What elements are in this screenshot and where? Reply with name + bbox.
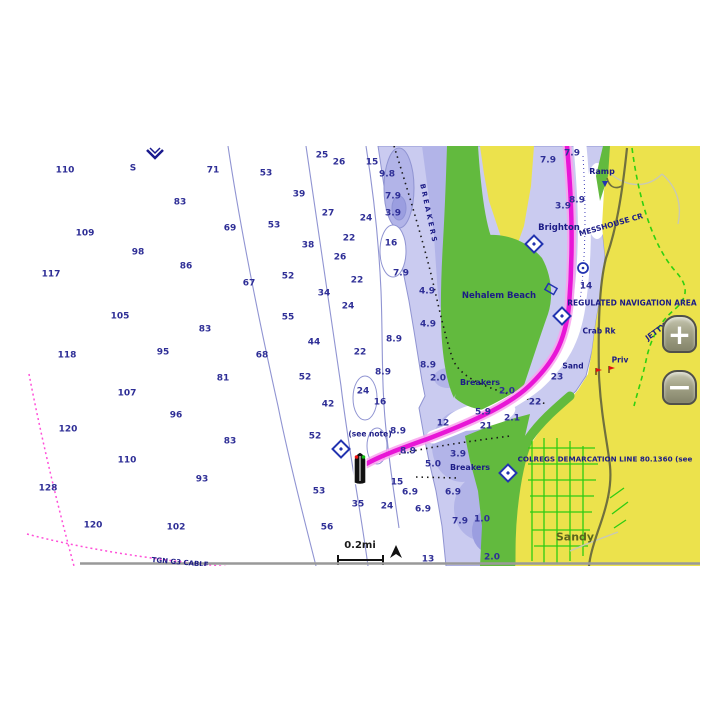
depth-sounding: 35 [352, 501, 365, 510]
depth-sounding: 53 [268, 222, 281, 231]
depth-sounding: 3.9 [450, 451, 466, 460]
depth-sounding: 12 [437, 420, 450, 429]
depth-sounding: 5.9 [475, 409, 491, 418]
depth-sounding: 8.9 [569, 197, 585, 206]
depth-sounding: 95 [157, 349, 170, 358]
depth-sounding: 86 [180, 263, 193, 272]
depth-sounding: 83 [174, 199, 187, 208]
depth-sounding: 22 [354, 349, 367, 358]
place-label: Breakers [460, 379, 500, 387]
depth-sounding: 2.0 [430, 375, 446, 384]
depth-sounding: 7.9 [452, 518, 468, 527]
depth-sounding: 7.9 [393, 270, 409, 279]
depth-sounding: 22 [343, 235, 356, 244]
depth-sounding: 3.9 [385, 210, 401, 219]
depth-sounding: 13 [422, 556, 435, 565]
depth-sounding: 81 [217, 375, 230, 384]
place-label: BREAKERS [418, 183, 438, 245]
nautical-chart-canvas[interactable]: 1107183691099886117105831189581107961208… [10, 146, 700, 566]
depth-sounding: 8.9 [390, 428, 406, 437]
depth-sounding: 4.9 [420, 321, 436, 330]
depth-sounding: 8.9 [386, 336, 402, 345]
depth-sounding: 56 [321, 524, 334, 533]
depth-sounding: 6.9 [415, 506, 431, 515]
depth-sounding: 110 [56, 167, 75, 176]
depth-sounding: 44 [308, 339, 321, 348]
depth-sounding: 55 [282, 314, 295, 323]
depth-sounding: 24 [381, 503, 394, 512]
depth-sounding: 14 [580, 283, 593, 292]
depth-sounding: 6.9 [445, 489, 461, 498]
depth-sounding: 98 [132, 249, 145, 258]
depth-sounding: 21 [480, 423, 493, 432]
depth-sounding: 96 [170, 412, 183, 421]
depth-sounding: 16 [374, 399, 387, 408]
depth-sounding: 8.9 [400, 448, 416, 457]
depth-sounding: 42 [322, 401, 335, 410]
depth-sounding: 6.9 [402, 489, 418, 498]
place-label: MESSHOUSE CR [578, 212, 644, 237]
depth-sounding: 7.9 [385, 193, 401, 202]
depth-sounding: 68 [256, 352, 269, 361]
depth-sounding: 93 [196, 476, 209, 485]
depth-sounding: 26 [333, 159, 346, 168]
depth-sounding: 27 [322, 210, 335, 219]
place-label: (see note) [348, 430, 391, 438]
place-label: TGN G3 CABLE [151, 557, 208, 566]
depth-sounding: 83 [199, 326, 212, 335]
depth-sounding: 83 [224, 438, 237, 447]
depth-sounding: 24 [342, 303, 355, 312]
depth-sounding: 105 [111, 313, 130, 322]
depth-sounding: 7.9 [564, 150, 580, 159]
depth-sounding: 9.8 [379, 171, 395, 180]
depth-sounding: 24 [357, 388, 370, 397]
depth-sounding: S [130, 165, 136, 174]
place-label: Priv [612, 356, 629, 364]
depth-sounding: 67 [243, 280, 256, 289]
chart-annotations: 1107183691099886117105831189581107961208… [10, 146, 700, 566]
depth-sounding: 120 [84, 522, 103, 531]
depth-sounding: 71 [207, 167, 220, 176]
depth-sounding: 22 [529, 399, 542, 408]
depth-sounding: 102 [167, 524, 186, 533]
depth-sounding: 52 [299, 374, 312, 383]
depth-sounding: 5.0 [425, 461, 441, 470]
place-label: Crab Rk [582, 327, 615, 335]
depth-sounding: 117 [42, 271, 61, 280]
depth-sounding: 34 [318, 290, 331, 299]
depth-sounding: 39 [293, 191, 306, 200]
place-label: REGULATED NAVIGATION AREA [567, 299, 696, 307]
depth-sounding: 2.0 [484, 554, 500, 563]
scale-label: 0.2mi [344, 541, 376, 551]
depth-sounding: 52 [282, 273, 295, 282]
depth-sounding: 2.0 [499, 388, 515, 397]
town-label: Sandy [556, 532, 594, 543]
depth-sounding: 15 [391, 479, 404, 488]
place-label: Ramp [589, 168, 615, 176]
depth-sounding: 26 [334, 254, 347, 263]
depth-sounding: 1.0 [474, 516, 490, 525]
depth-sounding: 23 [551, 374, 564, 383]
place-label: COLREGS DEMARCATION LINE 80.1360 (see [518, 455, 693, 462]
depth-sounding: 38 [302, 242, 315, 251]
depth-sounding: 7.9 [540, 157, 556, 166]
depth-sounding: 120 [59, 426, 78, 435]
zoom-out-button[interactable]: − [662, 370, 697, 405]
depth-sounding: 16 [385, 240, 398, 249]
depth-sounding: 69 [224, 225, 237, 234]
depth-sounding: 22 [351, 277, 364, 286]
depth-sounding: 8.9 [375, 369, 391, 378]
depth-sounding: 25 [316, 152, 329, 161]
place-label: Breakers [450, 464, 490, 472]
zoom-in-button[interactable]: + [662, 315, 697, 353]
depth-sounding: 128 [39, 485, 58, 494]
depth-sounding: 8.9 [420, 362, 436, 371]
place-label: Brighton [538, 224, 580, 233]
depth-sounding: 52 [309, 433, 322, 442]
depth-sounding: 4.9 [419, 288, 435, 297]
depth-sounding: 24 [360, 215, 373, 224]
depth-sounding: 15 [366, 159, 379, 168]
place-label: Nehalem Beach [462, 292, 536, 301]
place-label: Sand [562, 362, 583, 370]
depth-sounding: 118 [58, 352, 77, 361]
depth-sounding: 2.1 [504, 415, 520, 424]
depth-sounding: 109 [76, 230, 95, 239]
depth-sounding: 3.9 [555, 203, 571, 212]
depth-sounding: 53 [313, 488, 326, 497]
depth-sounding: 107 [118, 390, 137, 399]
depth-sounding: 53 [260, 170, 273, 179]
depth-sounding: 110 [118, 457, 137, 466]
